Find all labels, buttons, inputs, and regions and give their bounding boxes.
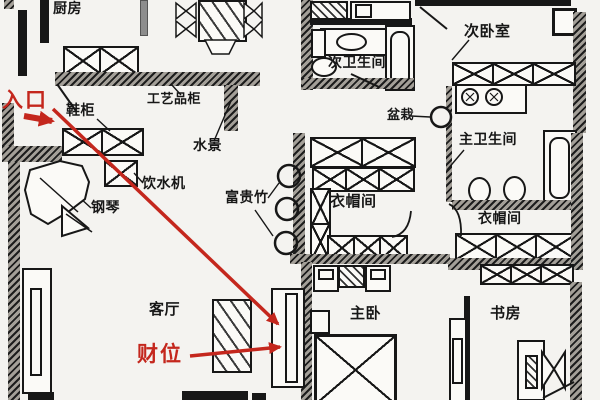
right-wall-lower xyxy=(570,282,582,400)
cloakroom-right-wardrobe xyxy=(495,233,539,261)
label-master-bedroom: 主卧 xyxy=(350,306,381,322)
sofa-edge xyxy=(182,391,248,400)
water-dispenser-box xyxy=(104,160,138,187)
label-second-bedroom: 次卧室 xyxy=(464,24,511,40)
sofa-edge xyxy=(252,393,266,400)
second-bedroom-top-wall xyxy=(415,0,571,6)
label-piano: 钢琴 xyxy=(91,201,120,216)
bookcase-inner xyxy=(452,338,463,384)
label-entrance: 入口 xyxy=(2,84,48,114)
cloakroom-wardrobe-top xyxy=(361,137,416,168)
storage-box xyxy=(310,1,348,20)
left-wall-lower xyxy=(8,162,20,400)
floor-plan: 厨房 次卧室 次卫生间 鞋柜 工艺品柜 水景 盆栽 主卫生间 饮水机 富贵竹 钢… xyxy=(0,0,600,400)
wealth-corner-cabinet-inner xyxy=(285,293,298,383)
kitchen-left-wall xyxy=(18,10,27,76)
desk-inner xyxy=(525,355,538,389)
sofa-edge xyxy=(28,392,54,400)
sink-icon xyxy=(336,33,367,51)
label-lucky-bamboo: 富贵竹 xyxy=(225,191,269,206)
second-bathroom-cabinet xyxy=(311,29,326,58)
cloakroom-wardrobe-left xyxy=(310,188,331,227)
wall-top-left-corner xyxy=(4,0,14,9)
master-bed xyxy=(314,334,397,400)
desk-chair-icon xyxy=(542,352,565,388)
master-bathroom-left-wall xyxy=(446,86,452,202)
dining-stool xyxy=(205,40,236,54)
label-cloakroom-center: 衣帽间 xyxy=(330,194,377,210)
label-water-feature: 水景 xyxy=(193,139,222,154)
lucky-bamboo-pointer xyxy=(255,210,273,236)
cloakroom-wardrobe xyxy=(345,167,382,192)
storage-box-inner xyxy=(355,4,372,18)
cloakroom-wardrobe-top xyxy=(310,137,365,168)
shower-tub-icon xyxy=(549,137,570,199)
nightstand-inner xyxy=(318,269,334,280)
second-bedroom-pointer xyxy=(452,40,469,60)
kitchen-partition-wall xyxy=(40,0,49,43)
second-bedroom-door-line xyxy=(420,7,447,29)
label-living-room: 客厅 xyxy=(149,302,180,318)
shoe-cabinet-box xyxy=(62,128,105,156)
entry-side-wall xyxy=(2,146,62,162)
bedside-table xyxy=(310,310,330,334)
second-bedroom-wardrobe xyxy=(452,62,496,86)
study-wardrobe xyxy=(510,264,544,285)
master-bathroom-bottom-wall xyxy=(452,200,583,210)
master-bathroom-vanity xyxy=(455,84,527,114)
label-shoe-cabinet: 鞋柜 xyxy=(66,104,95,119)
glass-side-table xyxy=(212,299,252,373)
label-second-bathroom: 次卫生间 xyxy=(328,56,386,71)
kitchen-dining-divider-wall xyxy=(140,0,148,36)
piano-icon xyxy=(25,161,92,236)
second-bathroom-bottom-wall xyxy=(302,78,414,89)
label-potted-plant: 盆栽 xyxy=(387,109,414,123)
hallway-cabinet-wall xyxy=(55,72,260,86)
cloakroom-door-arc xyxy=(392,211,411,237)
second-bedroom-wardrobe xyxy=(492,62,536,86)
study-wardrobe xyxy=(480,264,514,285)
bidet-icon xyxy=(503,176,526,203)
center-wall-upper xyxy=(293,133,305,263)
water-feature-strip xyxy=(224,85,238,131)
label-wealth-position: 财位 xyxy=(137,338,183,368)
label-master-bathroom: 主卫生间 xyxy=(459,133,517,148)
entrance-arrow xyxy=(24,116,52,121)
dining-table xyxy=(198,0,247,42)
study-wardrobe xyxy=(540,264,574,285)
nightstand-inner xyxy=(370,269,386,280)
cloakroom-wardrobe xyxy=(378,167,415,192)
piano-pointer xyxy=(79,197,91,208)
label-cloakroom-right: 衣帽间 xyxy=(478,212,522,227)
shoe-cabinet-box xyxy=(101,128,144,156)
tv-icon xyxy=(30,288,42,376)
label-study: 书房 xyxy=(490,306,521,322)
cloakroom-right-wardrobe xyxy=(455,233,499,261)
lucky-bamboo-pointer xyxy=(268,183,279,198)
master-bedroom-top-wall xyxy=(290,254,450,264)
label-craft-cabinet: 工艺品柜 xyxy=(147,93,201,107)
label-water-dispenser: 饮水机 xyxy=(142,177,186,192)
dresser xyxy=(338,265,365,288)
label-kitchen: 厨房 xyxy=(53,2,82,17)
right-wall-middle xyxy=(571,133,583,270)
second-bedroom-wardrobe xyxy=(532,62,576,86)
